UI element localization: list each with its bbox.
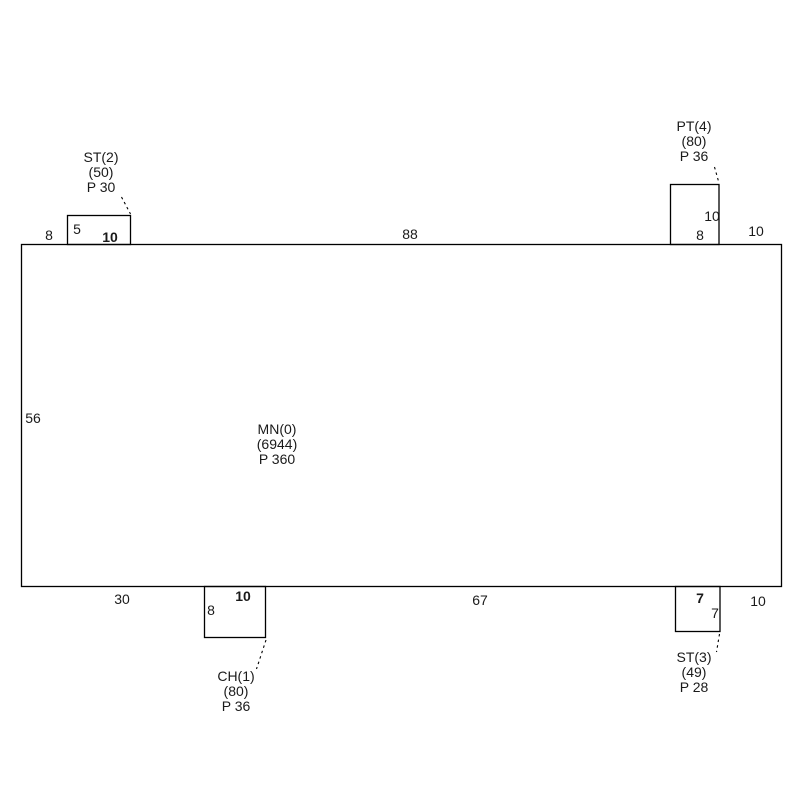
dim-pt4-height: 10 <box>704 209 720 223</box>
floor-plan-canvas: ST(2) (50) P 30 PT(4) (80) P 36 MN(0) (6… <box>0 0 800 800</box>
dim-top-right-offset: 10 <box>748 224 764 238</box>
leader-line-st2 <box>122 197 131 214</box>
leader-line-pt4 <box>715 167 720 183</box>
dim-main-left-height: 56 <box>25 411 41 425</box>
dim-st2-height: 5 <box>73 222 81 236</box>
room-perimeter: P 36 <box>677 149 712 164</box>
room-area: (50) <box>84 165 119 180</box>
room-area: (49) <box>677 665 712 680</box>
dim-ch1-height: 8 <box>207 603 215 617</box>
leader-line-ch1 <box>257 640 267 669</box>
room-name: ST(2) <box>84 150 119 165</box>
room-area: (80) <box>677 134 712 149</box>
dim-pt4-width: 8 <box>696 228 704 242</box>
room-area: (6944) <box>257 437 297 452</box>
dim-ch1-width: 10 <box>235 589 251 603</box>
room-label-st3: ST(3) (49) P 28 <box>677 650 712 695</box>
room-name: MN(0) <box>257 422 297 437</box>
room-perimeter: P 30 <box>84 180 119 195</box>
dim-bottom-right-offset: 10 <box>750 594 766 608</box>
room-perimeter: P 360 <box>257 452 297 467</box>
dim-st2-width: 10 <box>102 230 118 244</box>
room-label-pt4: PT(4) (80) P 36 <box>677 119 712 164</box>
room-label-main: MN(0) (6944) P 360 <box>257 422 297 467</box>
room-name: PT(4) <box>677 119 712 134</box>
dim-bottom-left-offset: 30 <box>114 592 130 606</box>
dim-st3-width: 7 <box>696 591 704 605</box>
leader-line-st3 <box>717 634 720 652</box>
dim-top-left-offset: 8 <box>45 228 53 242</box>
room-perimeter: P 36 <box>217 699 254 714</box>
room-perimeter: P 28 <box>677 680 712 695</box>
dim-st3-height: 7 <box>711 606 719 620</box>
dim-top-span: 88 <box>402 227 418 241</box>
room-label-ch1: CH(1) (80) P 36 <box>217 669 254 714</box>
room-label-st2: ST(2) (50) P 30 <box>84 150 119 195</box>
room-name: ST(3) <box>677 650 712 665</box>
room-name: CH(1) <box>217 669 254 684</box>
room-area: (80) <box>217 684 254 699</box>
dim-bottom-span: 67 <box>472 593 488 607</box>
room-main-outline <box>22 245 782 587</box>
